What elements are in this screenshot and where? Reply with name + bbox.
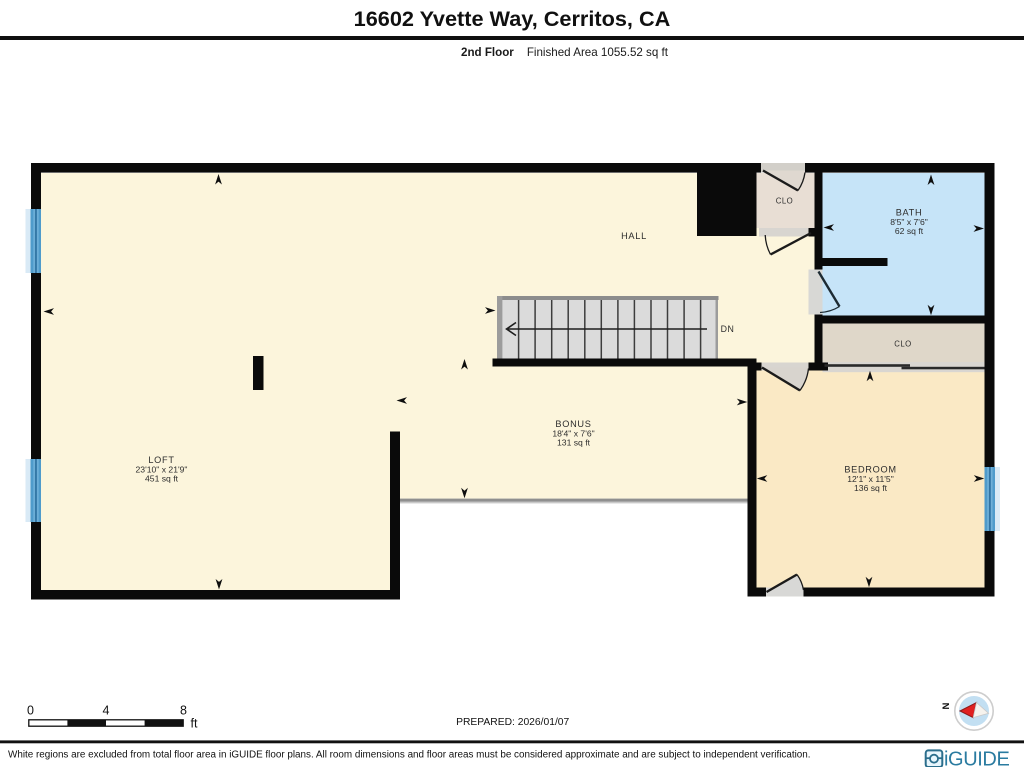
svg-text:PREPARED: 2026/01/07: PREPARED: 2026/01/07 [456,717,569,728]
svg-text:White regions are excluded fro: White regions are excluded from total fl… [8,750,811,761]
svg-text:DN: DN [721,324,735,334]
svg-text:8: 8 [180,704,187,718]
svg-text:ft: ft [191,717,198,731]
svg-text:0: 0 [27,704,34,718]
svg-text:HALL: HALL [621,231,647,241]
svg-text:CLO: CLO [894,340,912,349]
svg-text:136 sq ft: 136 sq ft [854,483,888,493]
svg-text:4: 4 [103,704,110,718]
svg-text:N: N [941,702,952,709]
svg-text:451 sq ft: 451 sq ft [145,474,179,484]
svg-text:131 sq ft: 131 sq ft [557,438,591,448]
svg-text:CLO: CLO [776,196,794,205]
svg-text:62 sq ft: 62 sq ft [895,226,924,236]
svg-text:iGUIDE: iGUIDE [944,748,1009,767]
